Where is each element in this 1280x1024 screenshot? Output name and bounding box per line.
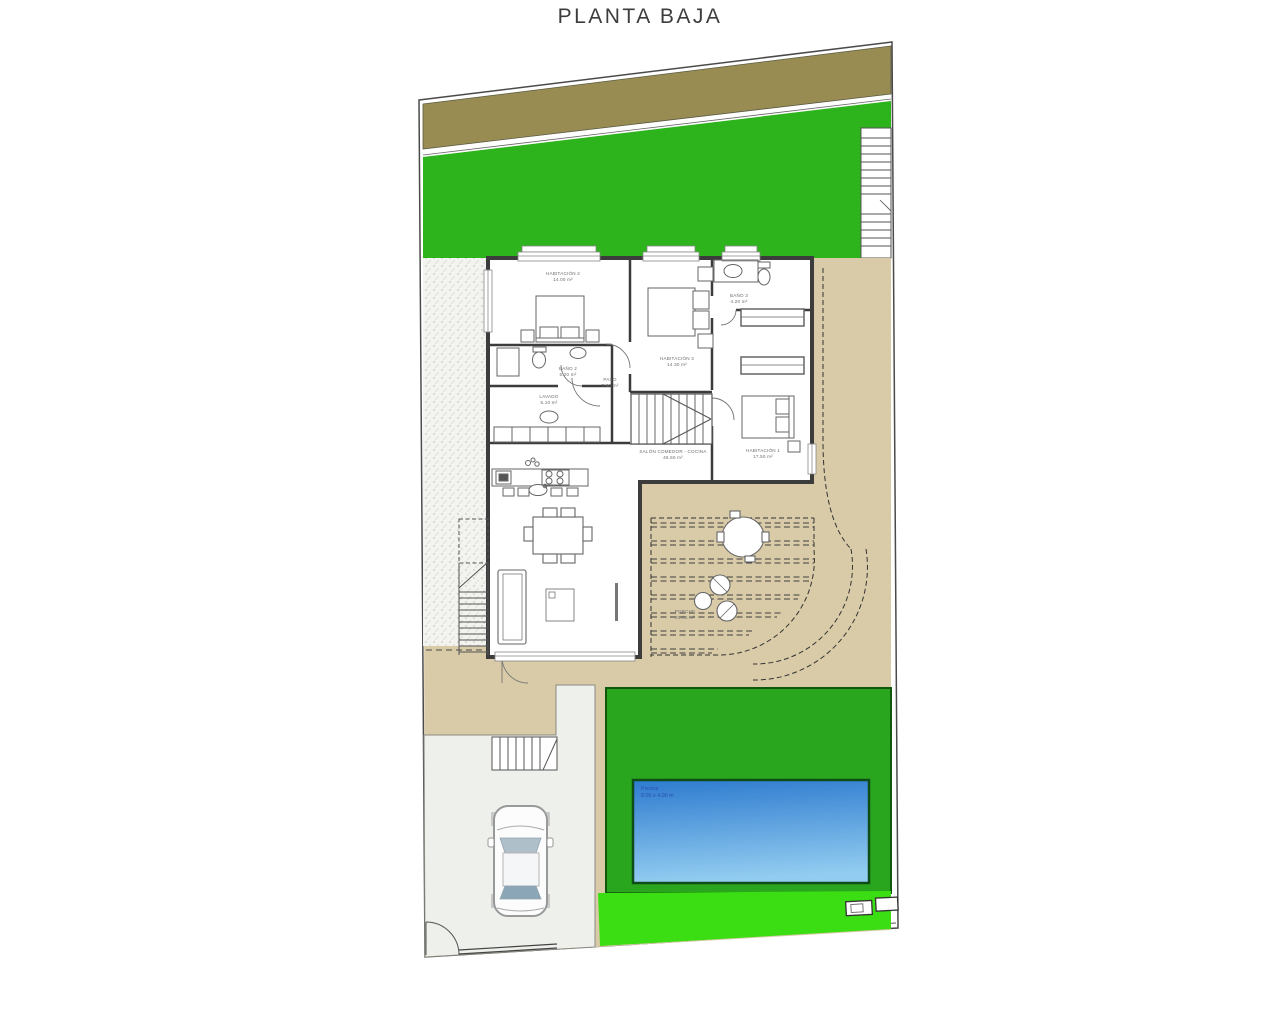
driveway-stairs	[492, 737, 557, 770]
room-label-salon-area: 46.50 m²	[663, 455, 683, 460]
room-label-salon-name: SALÓN COMEDOR - COCINA	[639, 448, 707, 454]
room-label-habitacion-3-name: HABITACIÓN 3	[660, 355, 694, 361]
interior-stairs	[631, 394, 712, 444]
room-label-paso-area: 7.60 m²	[602, 383, 619, 388]
right-exterior-steps	[861, 128, 891, 258]
room-label-paso-name: PASO	[603, 377, 616, 382]
room-label-bano-2-name: BAÑO 2	[559, 365, 577, 371]
room-label-lavado-name: LAVADO	[539, 394, 558, 399]
room-label-habitacion-3-area: 14.30 m²	[667, 362, 687, 367]
pool-label-size: 8.00 x 4.00 m	[641, 793, 674, 799]
room-label-lavado-area: 5.10 m²	[541, 400, 558, 405]
floor-plan-canvas: Piscina 8.00 x 4.00 m	[0, 0, 1280, 1024]
room-label-porche-area: 23.85 m²	[675, 615, 695, 620]
pool-label-name: Piscina	[641, 786, 658, 792]
pool: Piscina 8.00 x 4.00 m	[633, 780, 869, 883]
room-label-habitacion-1-name: HABITACIÓN 1	[746, 447, 780, 453]
room-label-bano-3-name: BAÑO 3	[730, 292, 748, 298]
floor-plan-page: PLANTA BAJA	[0, 0, 1280, 1024]
room-label-porche-name: PORCHE	[675, 609, 696, 614]
room-label-bano-3-area: 4.20 m²	[731, 299, 748, 304]
room-label-habitacion-2-name: HABITACIÓN 2	[546, 270, 580, 276]
room-label-habitacion-2-area: 14.00 m²	[553, 277, 573, 282]
room-label-habitacion-1-area: 17.50 m²	[753, 454, 773, 459]
gravel-path	[423, 258, 488, 646]
car	[488, 806, 553, 916]
room-label-bano-2-area: 5.20 m²	[560, 372, 577, 377]
